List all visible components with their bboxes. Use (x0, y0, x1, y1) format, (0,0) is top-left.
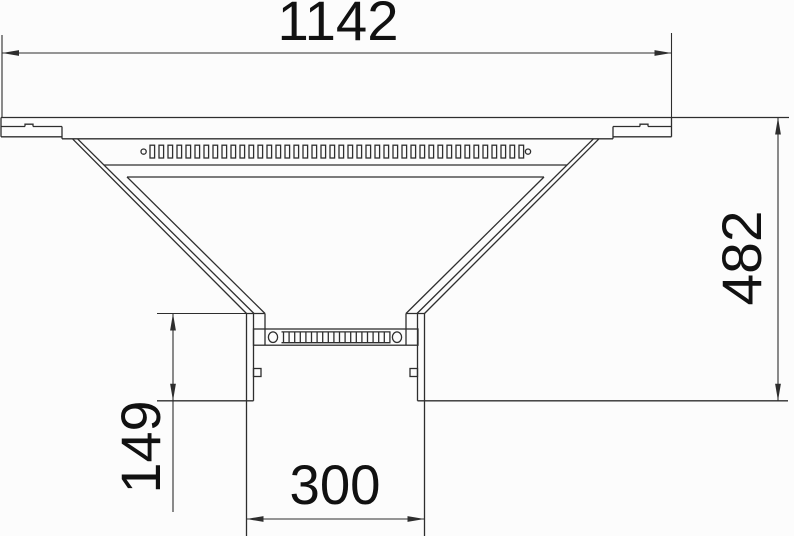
arrowhead-right (408, 516, 425, 522)
rung-hole-right (392, 332, 401, 343)
arrowhead-right (655, 50, 672, 56)
rail-slot (402, 145, 407, 158)
branch-rung (254, 329, 419, 345)
rail-slot (177, 145, 182, 158)
arrowhead-down (170, 384, 176, 401)
dimension-left-branch-height: 149 (109, 314, 247, 513)
rail-slot (150, 145, 155, 158)
rail-slot (186, 145, 191, 158)
drawing-canvas: 1142 482 149 300 (0, 0, 794, 536)
rail-slot (429, 145, 434, 158)
rail-slot (258, 145, 263, 158)
rail-slot (465, 145, 470, 158)
left-flange-tab (25, 124, 33, 126)
perforation-slot-row (141, 145, 531, 158)
arrowhead-up (775, 118, 781, 135)
rail-slot (330, 145, 335, 158)
rail-slot (375, 145, 380, 158)
rail-slot (357, 145, 362, 158)
rail-slot (348, 145, 353, 158)
rail-slot (168, 145, 173, 158)
dimension-top-width: 1142 (2, 0, 672, 118)
rail-slot (366, 145, 371, 158)
right-rail-notch (410, 369, 418, 377)
rail-slot (492, 145, 497, 158)
rail-slot (447, 145, 452, 158)
dim-label-top-width: 1142 (278, 0, 399, 52)
rail-slot (204, 145, 209, 158)
arrowhead-up (170, 314, 176, 331)
rail-slot (519, 145, 524, 158)
end-hole-left (141, 149, 146, 154)
rail-slot (312, 145, 317, 158)
arrowhead-down (775, 384, 781, 401)
rung-hole-left (268, 332, 277, 343)
arrowhead-left (2, 50, 19, 56)
arrowhead-left (247, 516, 264, 522)
dimension-right-height: 482 (710, 118, 781, 401)
dim-label-left-branch: 149 (109, 401, 172, 494)
rail-slot (483, 145, 488, 158)
rail-slot (213, 145, 218, 158)
rail-slot (393, 145, 398, 158)
cable-tray-tee-drawing: 1142 482 149 300 (0, 0, 794, 536)
rail-slot (285, 145, 290, 158)
dim-label-right-height: 482 (710, 211, 773, 306)
rail-slot (159, 145, 164, 158)
dim-label-bottom-branch: 300 (290, 453, 381, 516)
right-end-flange (613, 124, 672, 139)
rung-perforation-ticks (284, 332, 390, 343)
rail-slot (195, 145, 200, 158)
rail-slot (276, 145, 281, 158)
rail-slot (501, 145, 506, 158)
rail-slot (249, 145, 254, 158)
left-diagonal-fold (127, 177, 265, 314)
rail-slot (510, 145, 515, 158)
rail-slot (384, 145, 389, 158)
rail-slot (303, 145, 308, 158)
left-rail-notch (254, 369, 262, 377)
end-hole-right (525, 149, 530, 154)
rail-slot (420, 145, 425, 158)
rail-slot (240, 145, 245, 158)
rail-slot (222, 145, 227, 158)
right-diagonal-fold (406, 177, 544, 314)
rail-slot (267, 145, 272, 158)
rail-slot (294, 145, 299, 158)
dimension-bottom-branch-width: 300 (247, 453, 425, 522)
rail-slot (321, 145, 326, 158)
right-flange-tab (640, 124, 648, 126)
branch-outlet (157, 314, 788, 536)
rail-slot (456, 145, 461, 158)
rail-slot (438, 145, 443, 158)
left-end-flange (1, 124, 62, 139)
rail-slot (411, 145, 416, 158)
rail-slot (474, 145, 479, 158)
rail-slot (339, 145, 344, 158)
rail-slot (231, 145, 236, 158)
